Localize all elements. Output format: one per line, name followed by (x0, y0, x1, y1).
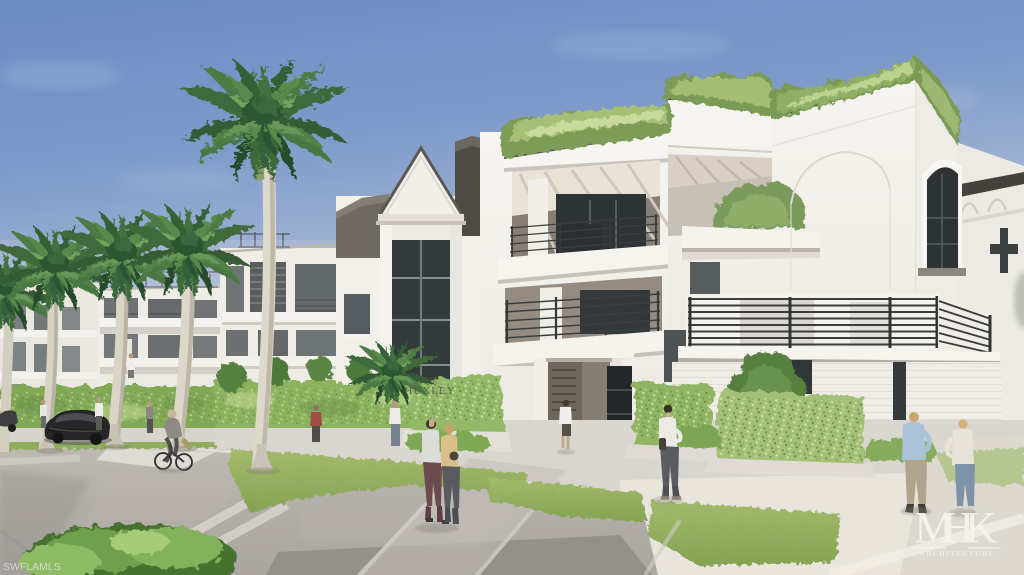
svg-text:SWFLAMLS: SWFLAMLS (3, 561, 61, 573)
svg-text:ARCHITECTURE: ARCHITECTURE (919, 549, 994, 558)
svg-text:HUXLEY: HUXLEY (404, 385, 455, 397)
svg-text:THE: THE (422, 377, 438, 384)
svg-text:K: K (965, 503, 997, 552)
